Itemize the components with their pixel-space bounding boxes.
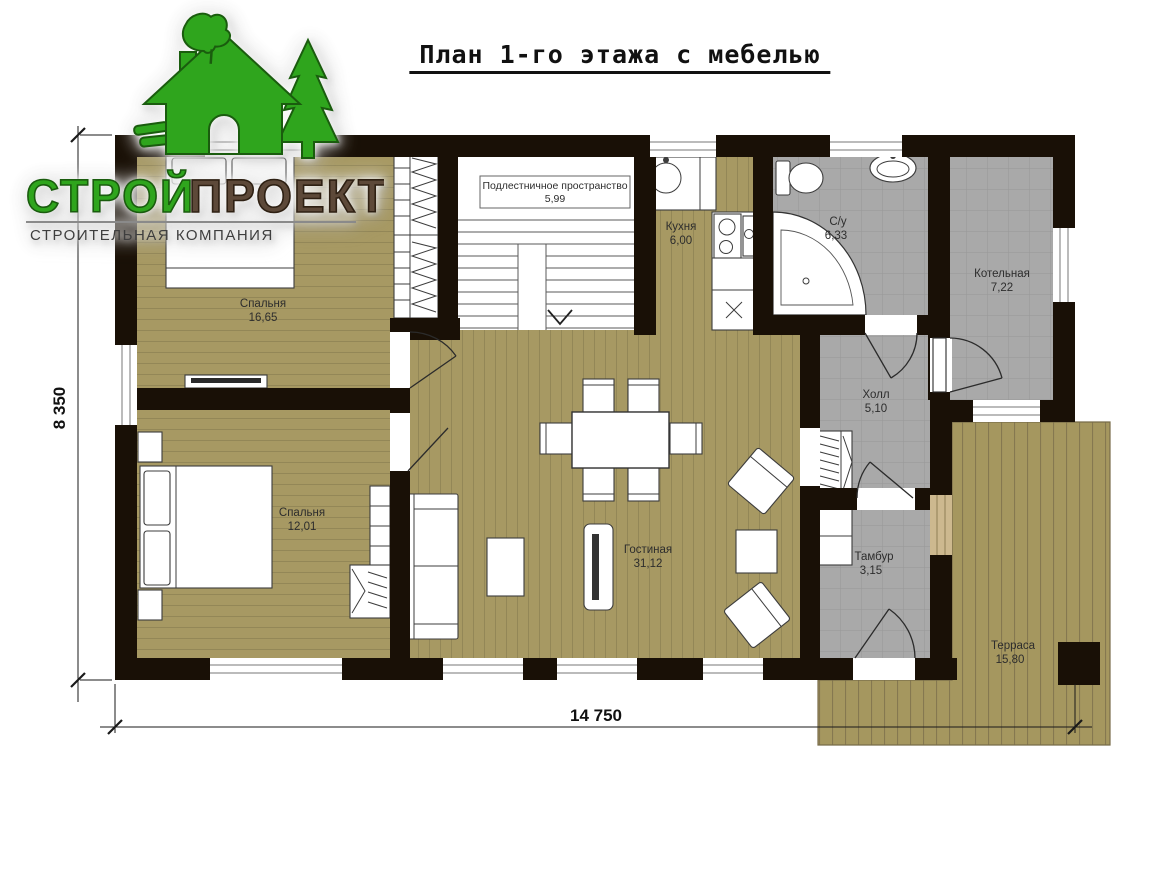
vestibule-cabinet: [818, 508, 852, 565]
svg-text:16,65: 16,65: [249, 312, 278, 324]
logo-name-part1: СТРОЙ: [26, 170, 195, 222]
hall-wardrobe: [818, 431, 852, 495]
dining-chair: [628, 468, 659, 501]
svg-text:С/у: С/у: [829, 216, 847, 228]
dimension-height-value: 8 350: [50, 387, 69, 430]
wall-stairs-kitchen: [634, 135, 656, 335]
svg-text:15,80: 15,80: [996, 654, 1025, 666]
svg-text:Кухня: Кухня: [666, 221, 697, 233]
dining-chair: [583, 468, 614, 501]
opening-living-hall: [800, 428, 820, 486]
tv-dresser-bedroom-1: [185, 375, 267, 388]
svg-text:7,22: 7,22: [991, 282, 1013, 294]
logo-house-icon: [134, 12, 338, 158]
log-icon: [134, 122, 169, 136]
terrace-column: [1058, 642, 1100, 685]
svg-text:Гостиная: Гостиная: [624, 544, 672, 556]
svg-text:31,12: 31,12: [634, 558, 663, 570]
bed-double-2: [140, 466, 272, 588]
nightstand-bottom: [138, 590, 162, 620]
logo-subtitle: СТРОИТЕЛЬНАЯ КОМПАНИЯ: [30, 227, 274, 244]
cabinet-bedroom-2: [370, 486, 390, 566]
svg-text:Спальня: Спальня: [279, 507, 325, 519]
dining-chair: [670, 423, 702, 454]
floor-plan-page: Спальня 16,65 Спальня 12,01 Подлестнично…: [0, 0, 1160, 870]
coffee-table: [487, 538, 524, 596]
wardrobe-bedroom-1: [394, 152, 438, 318]
wardrobe-bedroom-2: [350, 565, 390, 618]
window: [703, 658, 763, 680]
svg-text:Холл: Холл: [862, 389, 889, 401]
nightstand-top: [138, 432, 162, 462]
window: [973, 400, 1040, 422]
toilet: [776, 161, 823, 195]
svg-text:Тамбур: Тамбур: [854, 551, 893, 563]
dimension-width-value: 14 750: [570, 706, 622, 725]
wall-kitchen-bathroom: [753, 135, 773, 335]
svg-text:Подлестничное пространство: Подлестничное пространство: [482, 180, 627, 192]
side-table: [736, 530, 777, 573]
svg-text:5,10: 5,10: [865, 403, 887, 415]
house-icon: [144, 32, 300, 154]
kitchen-counter: [712, 212, 756, 330]
svg-text:Спальня: Спальня: [240, 298, 286, 310]
wall-between-bedrooms: [115, 388, 410, 410]
svg-text:3,15: 3,15: [860, 565, 882, 577]
page-title: План 1-го этажа с мебелью: [409, 40, 830, 74]
dining-table: [572, 412, 669, 468]
svg-text:12,01: 12,01: [288, 521, 317, 533]
window: [650, 135, 716, 157]
window: [557, 658, 637, 680]
window: [1053, 228, 1075, 302]
tv-unit: [584, 524, 613, 610]
stove: [714, 214, 741, 258]
window: [115, 345, 137, 425]
dining-chair: [583, 379, 614, 412]
svg-text:Терраса: Терраса: [991, 640, 1036, 652]
wall-bedroom1-stairs: [438, 135, 458, 335]
window-wood-sill: [930, 495, 952, 555]
dining-chair: [628, 379, 659, 412]
window: [210, 658, 342, 680]
window: [443, 658, 523, 680]
logo-name-part2: ПРОЕКТ: [189, 170, 384, 222]
company-logo: СТРОЙ ПРОЕКТ СТРОИТЕЛЬНАЯ КОМПАНИЯ: [24, 12, 384, 250]
svg-text:6,33: 6,33: [825, 230, 847, 242]
svg-text:5,99: 5,99: [545, 193, 566, 205]
window: [830, 135, 902, 157]
svg-text:6,00: 6,00: [670, 235, 692, 247]
dining-chair: [540, 423, 572, 454]
wall-bathroom-hall: [753, 315, 950, 335]
svg-text:Котельная: Котельная: [974, 268, 1030, 280]
